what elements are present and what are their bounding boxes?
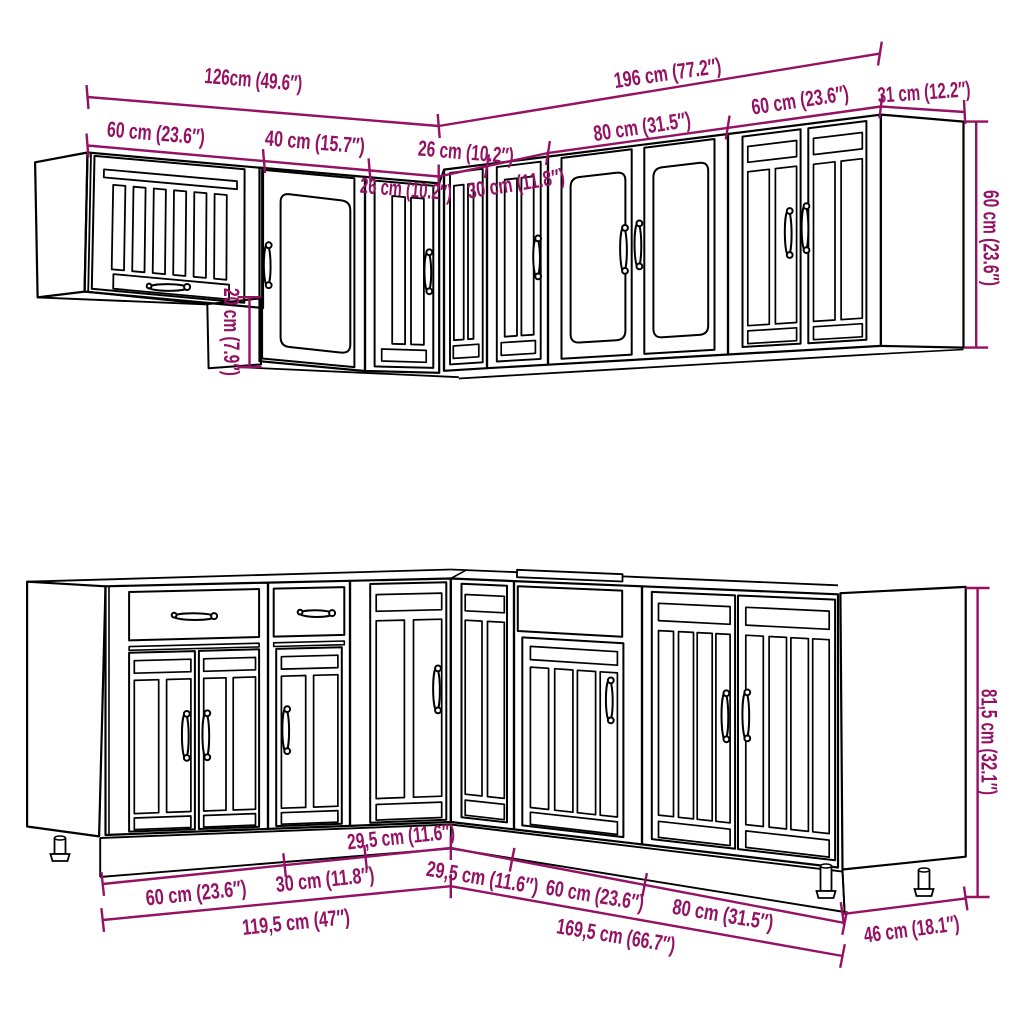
svg-text:20 cm (7.9″): 20 cm (7.9″) — [219, 288, 244, 376]
svg-text:60 cm (23.6″): 60 cm (23.6″) — [979, 190, 1004, 286]
svg-text:81,5 cm (32.1″): 81,5 cm (32.1″) — [977, 689, 1002, 795]
